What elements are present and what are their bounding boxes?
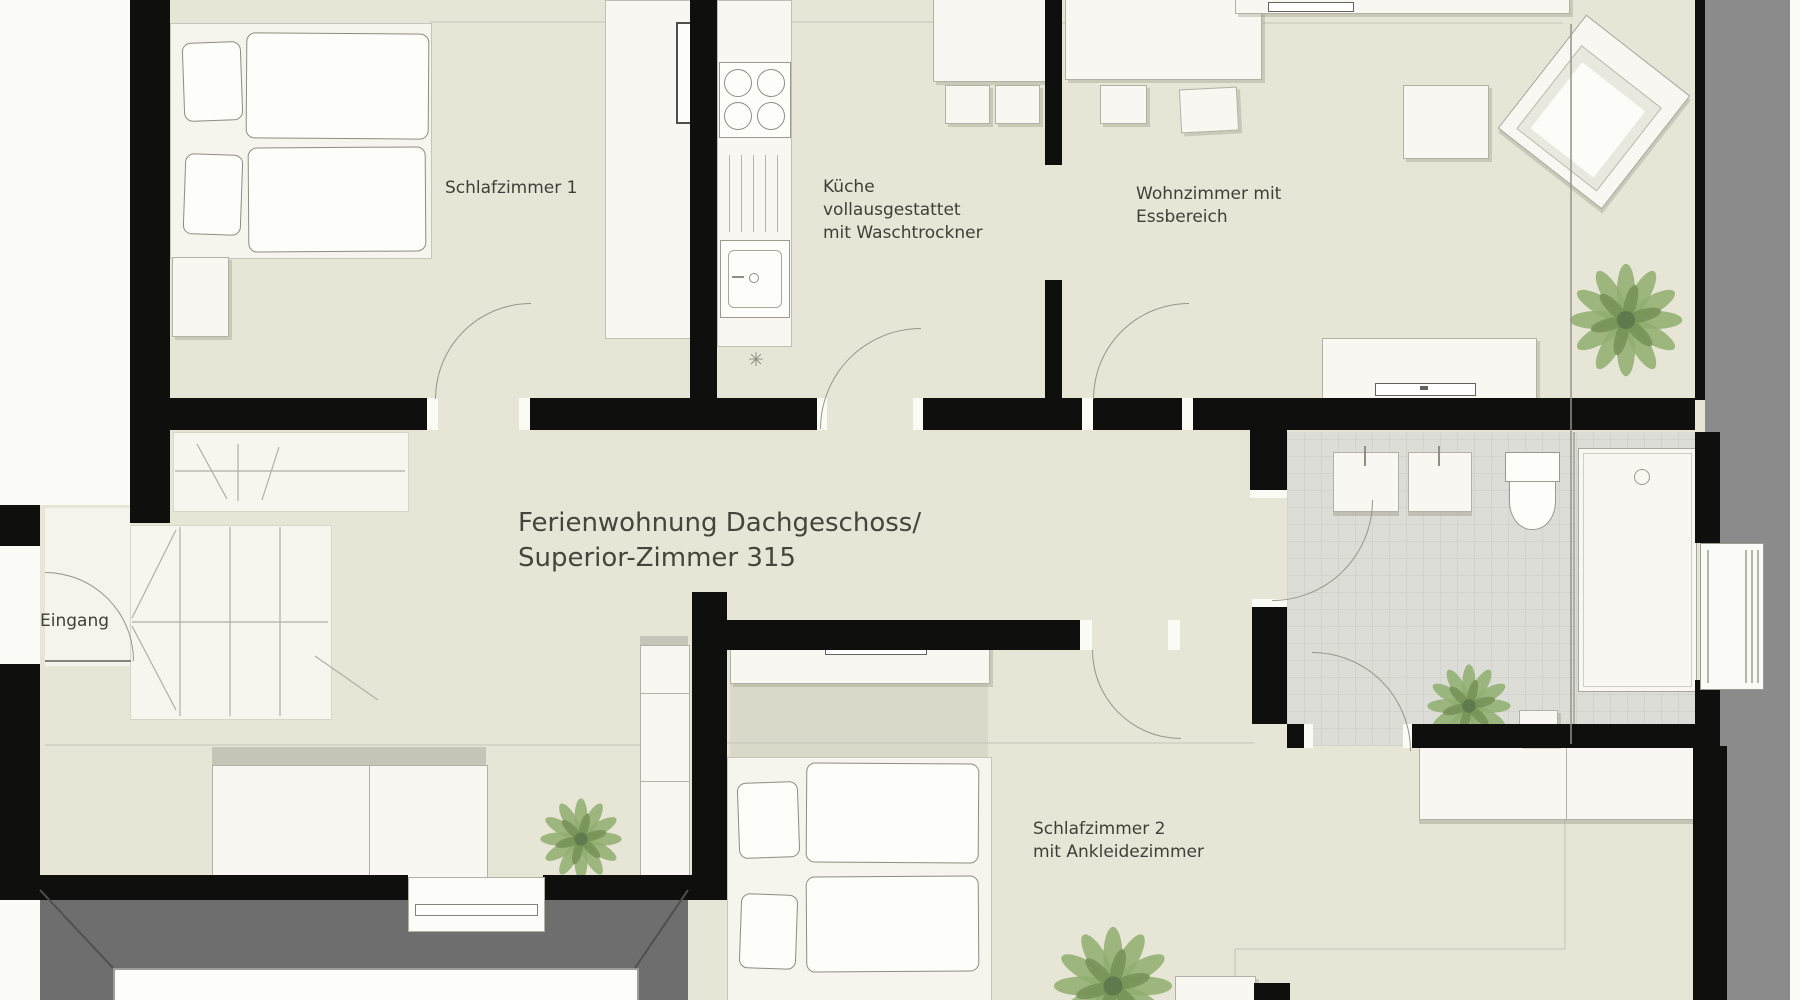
- wall: [690, 0, 717, 430]
- wall: [1045, 0, 1062, 165]
- kitchen-label-line1: Küche: [823, 176, 983, 199]
- dining-chair: [1100, 85, 1147, 124]
- wall: [130, 0, 170, 523]
- terrace-door: [408, 877, 545, 932]
- bed2-mattress-bottom: [806, 875, 980, 972]
- hall-closet: [640, 645, 690, 879]
- wall: [530, 398, 817, 430]
- bed1-mattress-top: [246, 32, 430, 139]
- entrance-label: Eingang: [40, 610, 109, 633]
- bedroom1-label: Schlafzimmer 1: [445, 177, 577, 200]
- coffee-table: [1403, 85, 1489, 159]
- wall: [543, 875, 727, 900]
- bed2-mattress-top: [806, 762, 980, 863]
- plan-title-line1: Ferienwohnung Dachgeschoss/: [518, 506, 921, 541]
- floorplan-canvas: ✳ Eingang: [0, 0, 1800, 1000]
- toilet-tank: [1505, 452, 1560, 482]
- plant-icon: [1052, 925, 1174, 1000]
- kitchen-label: Küche vollausgestattet mit Waschtrockner: [823, 176, 983, 245]
- plant-icon: [1568, 262, 1684, 378]
- stairs-main-flight: [130, 525, 332, 720]
- kitchen-label-line2: vollausgestattet: [823, 199, 983, 222]
- bed1-mattress-bottom: [248, 146, 427, 252]
- wall: [1045, 280, 1062, 398]
- drain-icon: [1634, 469, 1650, 485]
- sink-drain: [749, 273, 759, 283]
- wall: [1252, 607, 1287, 724]
- plant-icon: [539, 797, 623, 881]
- plan-title: Ferienwohnung Dachgeschoss/ Superior-Zim…: [518, 506, 921, 576]
- wall: [1693, 746, 1727, 1000]
- outside-right-edge: [1790, 0, 1800, 1000]
- bed2-pillow-bottom: [739, 893, 799, 970]
- dining-chair: [995, 85, 1040, 124]
- radiator-icon: [1700, 543, 1764, 690]
- wall: [1695, 0, 1705, 400]
- wall: [923, 398, 1193, 430]
- bath-sink: [1408, 452, 1472, 512]
- outside-bottom-left: [0, 900, 40, 1000]
- wall: [1695, 432, 1720, 543]
- wall: [1193, 398, 1695, 430]
- kitchen-label-line3: mit Waschtrockner: [823, 222, 983, 245]
- faucet-icon: [1364, 446, 1366, 466]
- dressing-wardrobe-row: [1419, 746, 1695, 820]
- shower-tub: [1578, 448, 1697, 692]
- sofa-backrest: [212, 747, 486, 766]
- wall: [1254, 983, 1290, 1000]
- dining-table-left: [933, 0, 1047, 82]
- living-label: Wohnzimmer mit Essbereich: [1136, 183, 1281, 229]
- stairs-upper-flight: [173, 432, 409, 512]
- bed1-pillow-top: [182, 41, 244, 122]
- sofa-daybed: [212, 765, 488, 879]
- dining-table-right: [1065, 0, 1262, 80]
- bed1-pillow-bottom: [183, 153, 244, 236]
- wall: [727, 620, 1080, 650]
- wall: [1412, 724, 1695, 748]
- bedroom2-label: Schlafzimmer 2 mit Ankleidezimmer: [1033, 818, 1204, 864]
- bedroom2-floor-shadow: [730, 682, 988, 758]
- sink-faucet: [732, 276, 744, 278]
- wall: [1287, 724, 1304, 748]
- plan-title-line2: Superior-Zimmer 315: [518, 541, 921, 576]
- bedroom2-bench: [1175, 976, 1256, 1000]
- living-label-line2: Essbereich: [1136, 206, 1281, 229]
- bed2-pillow-top: [737, 781, 801, 859]
- outside-top-left: [0, 0, 130, 505]
- wall: [0, 505, 40, 546]
- bedroom1-dresser: [172, 257, 229, 337]
- wall: [0, 875, 408, 900]
- shower-partition: [1573, 432, 1575, 746]
- dining-chair: [945, 85, 990, 124]
- terrace-deck: [113, 968, 639, 1000]
- bedroom2-label-line2: mit Ankleidezimmer: [1033, 841, 1204, 864]
- tv-icon: [1268, 2, 1354, 12]
- wall: [170, 398, 427, 430]
- wall: [692, 592, 727, 890]
- living-label-line1: Wohnzimmer mit: [1136, 183, 1281, 206]
- bedroom2-label-line1: Schlafzimmer 2: [1033, 818, 1204, 841]
- faucet-icon: [1438, 446, 1440, 466]
- wall: [0, 664, 40, 890]
- wall: [1250, 430, 1287, 498]
- closet-top-shadow: [640, 636, 688, 645]
- ceiling-light-icon: ✳: [748, 349, 764, 371]
- dining-chair: [1179, 87, 1239, 134]
